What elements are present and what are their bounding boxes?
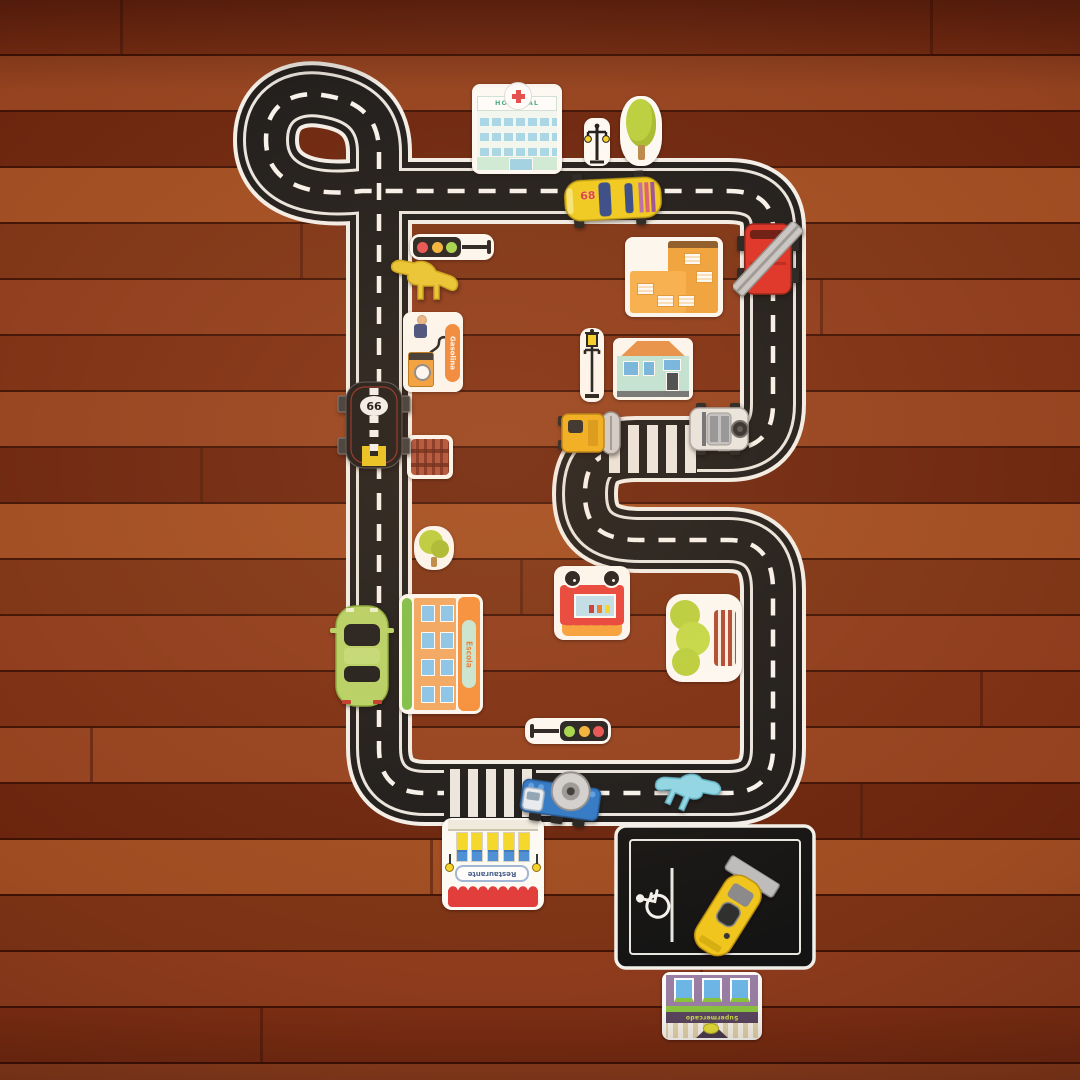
small-bush-sticker [414, 526, 454, 570]
table [503, 832, 515, 862]
cart-item [589, 605, 594, 613]
supermarket-flipped: Supermercado [662, 972, 762, 1040]
traffic-light-icon [413, 237, 461, 257]
tree-trunk [714, 610, 736, 666]
restaurant-sign: Restaurante [455, 865, 529, 882]
cart-item [597, 605, 602, 613]
tree-trunk [638, 145, 645, 160]
food-cart-sticker [554, 566, 630, 640]
gas-station-label: Gasolina [449, 336, 457, 370]
tree-sticker [620, 96, 662, 166]
mixer-truck [514, 756, 609, 835]
green-light [564, 726, 575, 737]
cart-window [574, 594, 616, 618]
apartment-window [696, 271, 713, 283]
traffic-light-icon [560, 721, 608, 741]
supermarket-wall [666, 975, 758, 1006]
traffic-light-pole [462, 245, 487, 249]
tree-foliage [626, 99, 656, 147]
cart-item [605, 605, 610, 613]
apartment-window [637, 283, 654, 295]
school-window [421, 659, 435, 676]
street-lamp-icon [580, 328, 604, 402]
black-race-car-body [336, 380, 412, 470]
house-window [663, 359, 681, 371]
supermarket-window [674, 979, 694, 1003]
red-cross-icon [504, 82, 532, 110]
cart-body [560, 585, 624, 625]
yellow-dinosaur-figure [386, 255, 462, 305]
school-wall [414, 598, 456, 710]
traffic-light-pole [534, 729, 559, 733]
traffic-light-sticker-lower [525, 718, 611, 744]
supermarket-window [730, 979, 750, 1003]
green-light [446, 242, 457, 253]
yellow-dinosaur [386, 255, 462, 305]
school-window [440, 632, 454, 649]
yellow-race-car-body [562, 169, 665, 228]
road-roller-body [556, 406, 624, 460]
traffic-light-base [487, 240, 491, 254]
hospital-entrance [477, 157, 557, 170]
school-window [440, 605, 454, 622]
table [456, 832, 468, 862]
restaurant-awning [448, 890, 538, 907]
double-street-lamp-sticker [584, 118, 610, 166]
cart-awning [562, 625, 622, 636]
school-window [440, 659, 454, 676]
red-light [593, 726, 604, 737]
apartment-window [684, 253, 701, 265]
house-sticker [613, 338, 693, 400]
fire-truck-body [733, 222, 803, 296]
red-light [417, 242, 428, 253]
cart-wheel [563, 569, 582, 588]
school-label: Escola [465, 641, 474, 668]
restaurant-tables [452, 832, 534, 862]
supermarket-sticker: Supermercado [662, 972, 762, 1040]
gas-station-sign: Gasolina [445, 324, 460, 382]
apartment-window [657, 295, 674, 307]
hospital-windows [477, 111, 557, 156]
school-sticker: Escola [399, 594, 483, 714]
gas-station-sticker: Gasolina [403, 312, 463, 392]
yellow-race-car: 68 [562, 169, 665, 228]
patio-lamp [532, 863, 541, 872]
school-window [421, 605, 435, 622]
house-window [623, 361, 639, 376]
restaurant-flipped: Restaurante [442, 818, 544, 910]
school-window [421, 632, 435, 649]
green-car-body [330, 604, 394, 708]
house-roof [617, 341, 689, 356]
house-door [666, 372, 679, 391]
school-window [440, 686, 454, 703]
school-hedge [402, 598, 412, 710]
road-roller [556, 406, 624, 460]
patio-lamp [445, 863, 454, 872]
house-base [617, 391, 689, 397]
house-wall [617, 356, 689, 391]
tree-foliage [668, 598, 714, 678]
white-jeep [688, 403, 750, 455]
playset-photo: HOSPITAL 68 [0, 0, 1080, 1080]
yellow-light [579, 726, 590, 737]
bench-slats [411, 439, 449, 475]
white-jeep-body [688, 403, 750, 455]
table [518, 832, 530, 862]
school-sign: Escola [462, 620, 476, 688]
table [471, 832, 483, 862]
fire-truck [733, 222, 803, 296]
supermarket-sign: Supermercado [666, 1012, 758, 1023]
supermarket-trim [666, 1006, 758, 1012]
school-window [421, 686, 435, 703]
mixer-truck-body [514, 756, 609, 835]
double-lamp-icon [584, 118, 610, 166]
orange-apartment-sticker [625, 237, 723, 317]
street-lamp-sticker [580, 328, 604, 402]
restaurant-sticker: Restaurante [442, 818, 544, 910]
food-cart-flipped [554, 566, 630, 640]
black-race-car: 66 [336, 380, 412, 470]
bush-trunk [431, 557, 437, 567]
hospital-sticker: HOSPITAL [472, 84, 562, 174]
lemon-decal [703, 1023, 719, 1034]
sideways-tree-sticker [666, 594, 742, 682]
apartment-window [678, 295, 695, 307]
house-window [643, 361, 655, 376]
table [487, 832, 499, 862]
supermarket-window [702, 979, 722, 1003]
yellow-light [432, 242, 443, 253]
green-car [330, 604, 394, 708]
bench-sticker [407, 435, 453, 479]
cart-wheel [602, 569, 621, 588]
